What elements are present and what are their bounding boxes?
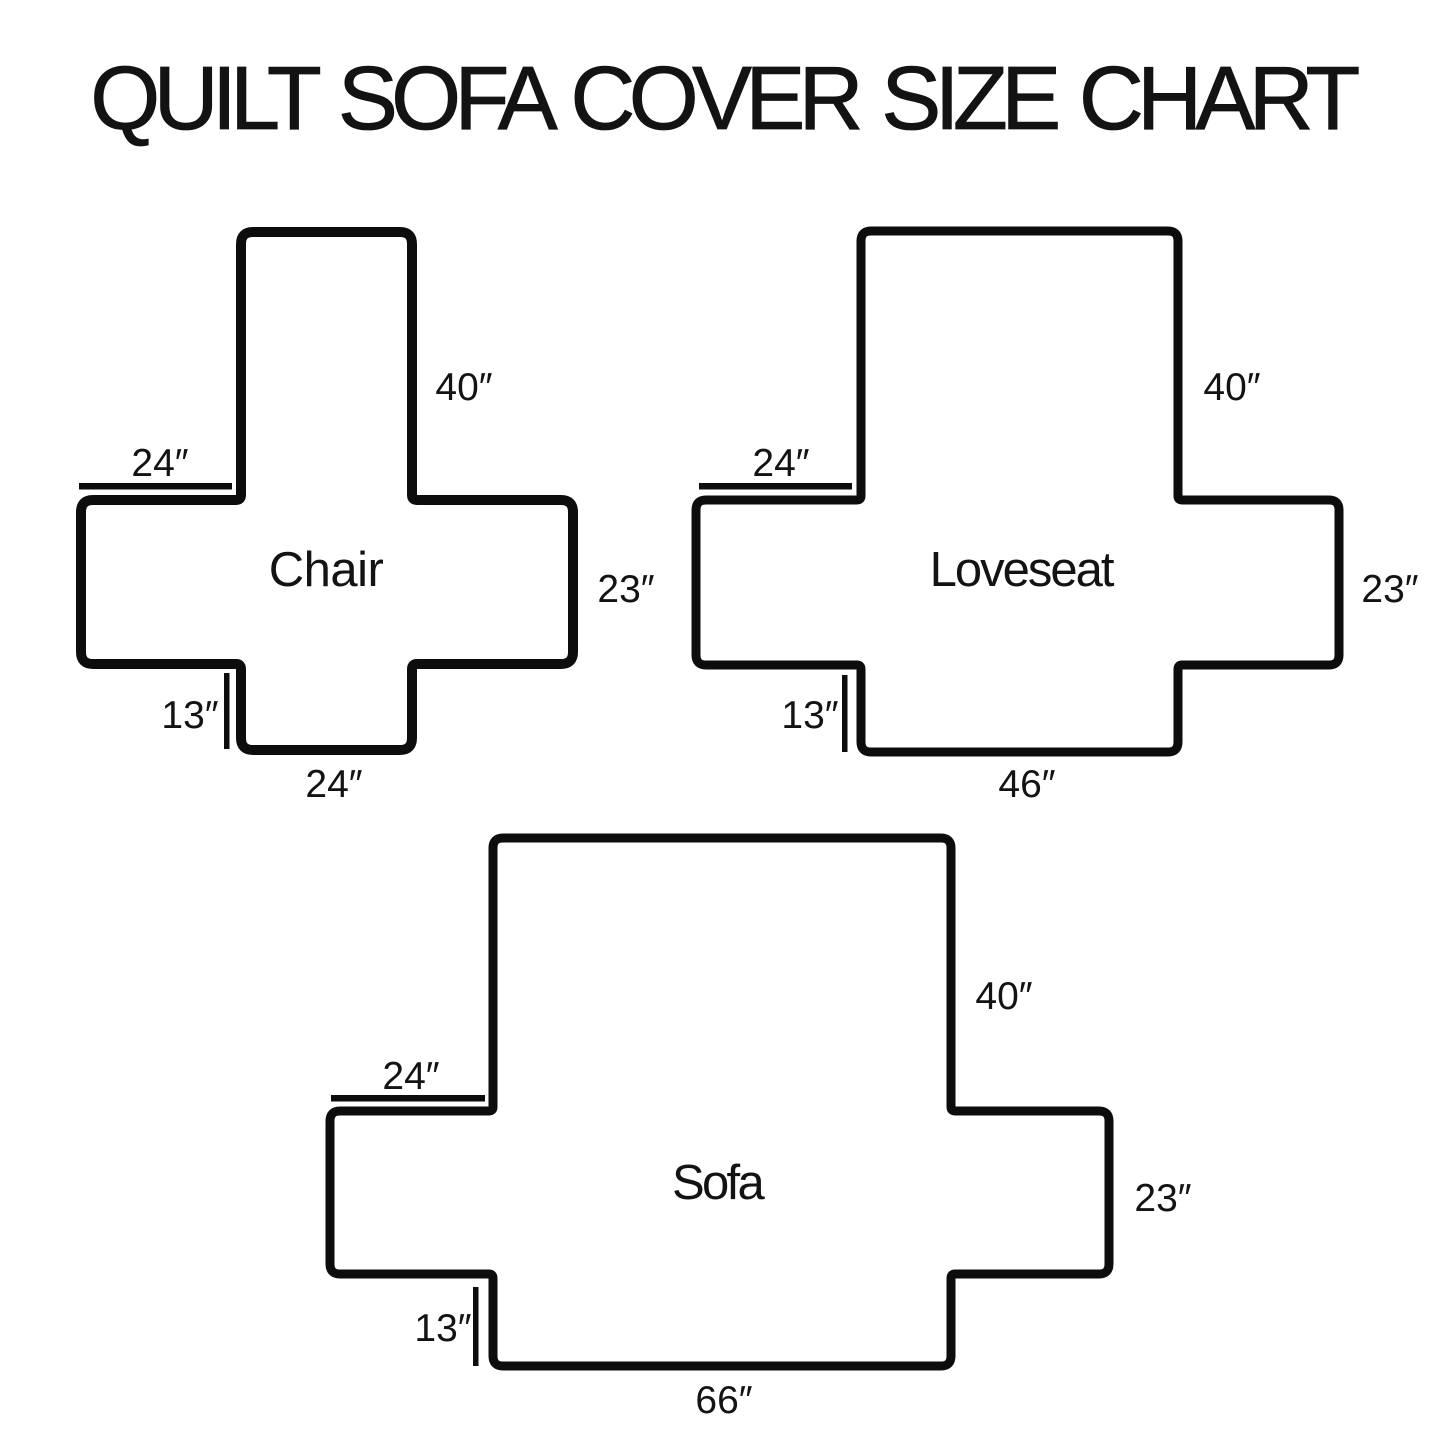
svg-text:Loveseat: Loveseat xyxy=(930,543,1115,597)
svg-text:QUILT SOFA COVER SIZE CHART: QUILT SOFA COVER SIZE CHART xyxy=(90,49,1358,149)
svg-text:40″: 40″ xyxy=(1203,366,1260,409)
svg-text:66″: 66″ xyxy=(695,1379,752,1422)
svg-text:Chair: Chair xyxy=(269,543,384,597)
svg-text:24″: 24″ xyxy=(752,442,809,485)
svg-text:24″: 24″ xyxy=(382,1055,439,1098)
svg-text:23″: 23″ xyxy=(1361,568,1418,611)
svg-text:40″: 40″ xyxy=(975,975,1032,1018)
svg-text:24″: 24″ xyxy=(305,763,362,806)
svg-text:Sofa: Sofa xyxy=(672,1156,765,1210)
svg-text:23″: 23″ xyxy=(597,568,654,611)
svg-text:46″: 46″ xyxy=(998,763,1055,806)
svg-text:13″: 13″ xyxy=(781,694,838,737)
svg-text:23″: 23″ xyxy=(1134,1177,1191,1220)
svg-text:24″: 24″ xyxy=(131,442,188,485)
svg-text:13″: 13″ xyxy=(414,1307,471,1350)
svg-text:40″: 40″ xyxy=(435,366,492,409)
svg-text:13″: 13″ xyxy=(161,694,218,737)
